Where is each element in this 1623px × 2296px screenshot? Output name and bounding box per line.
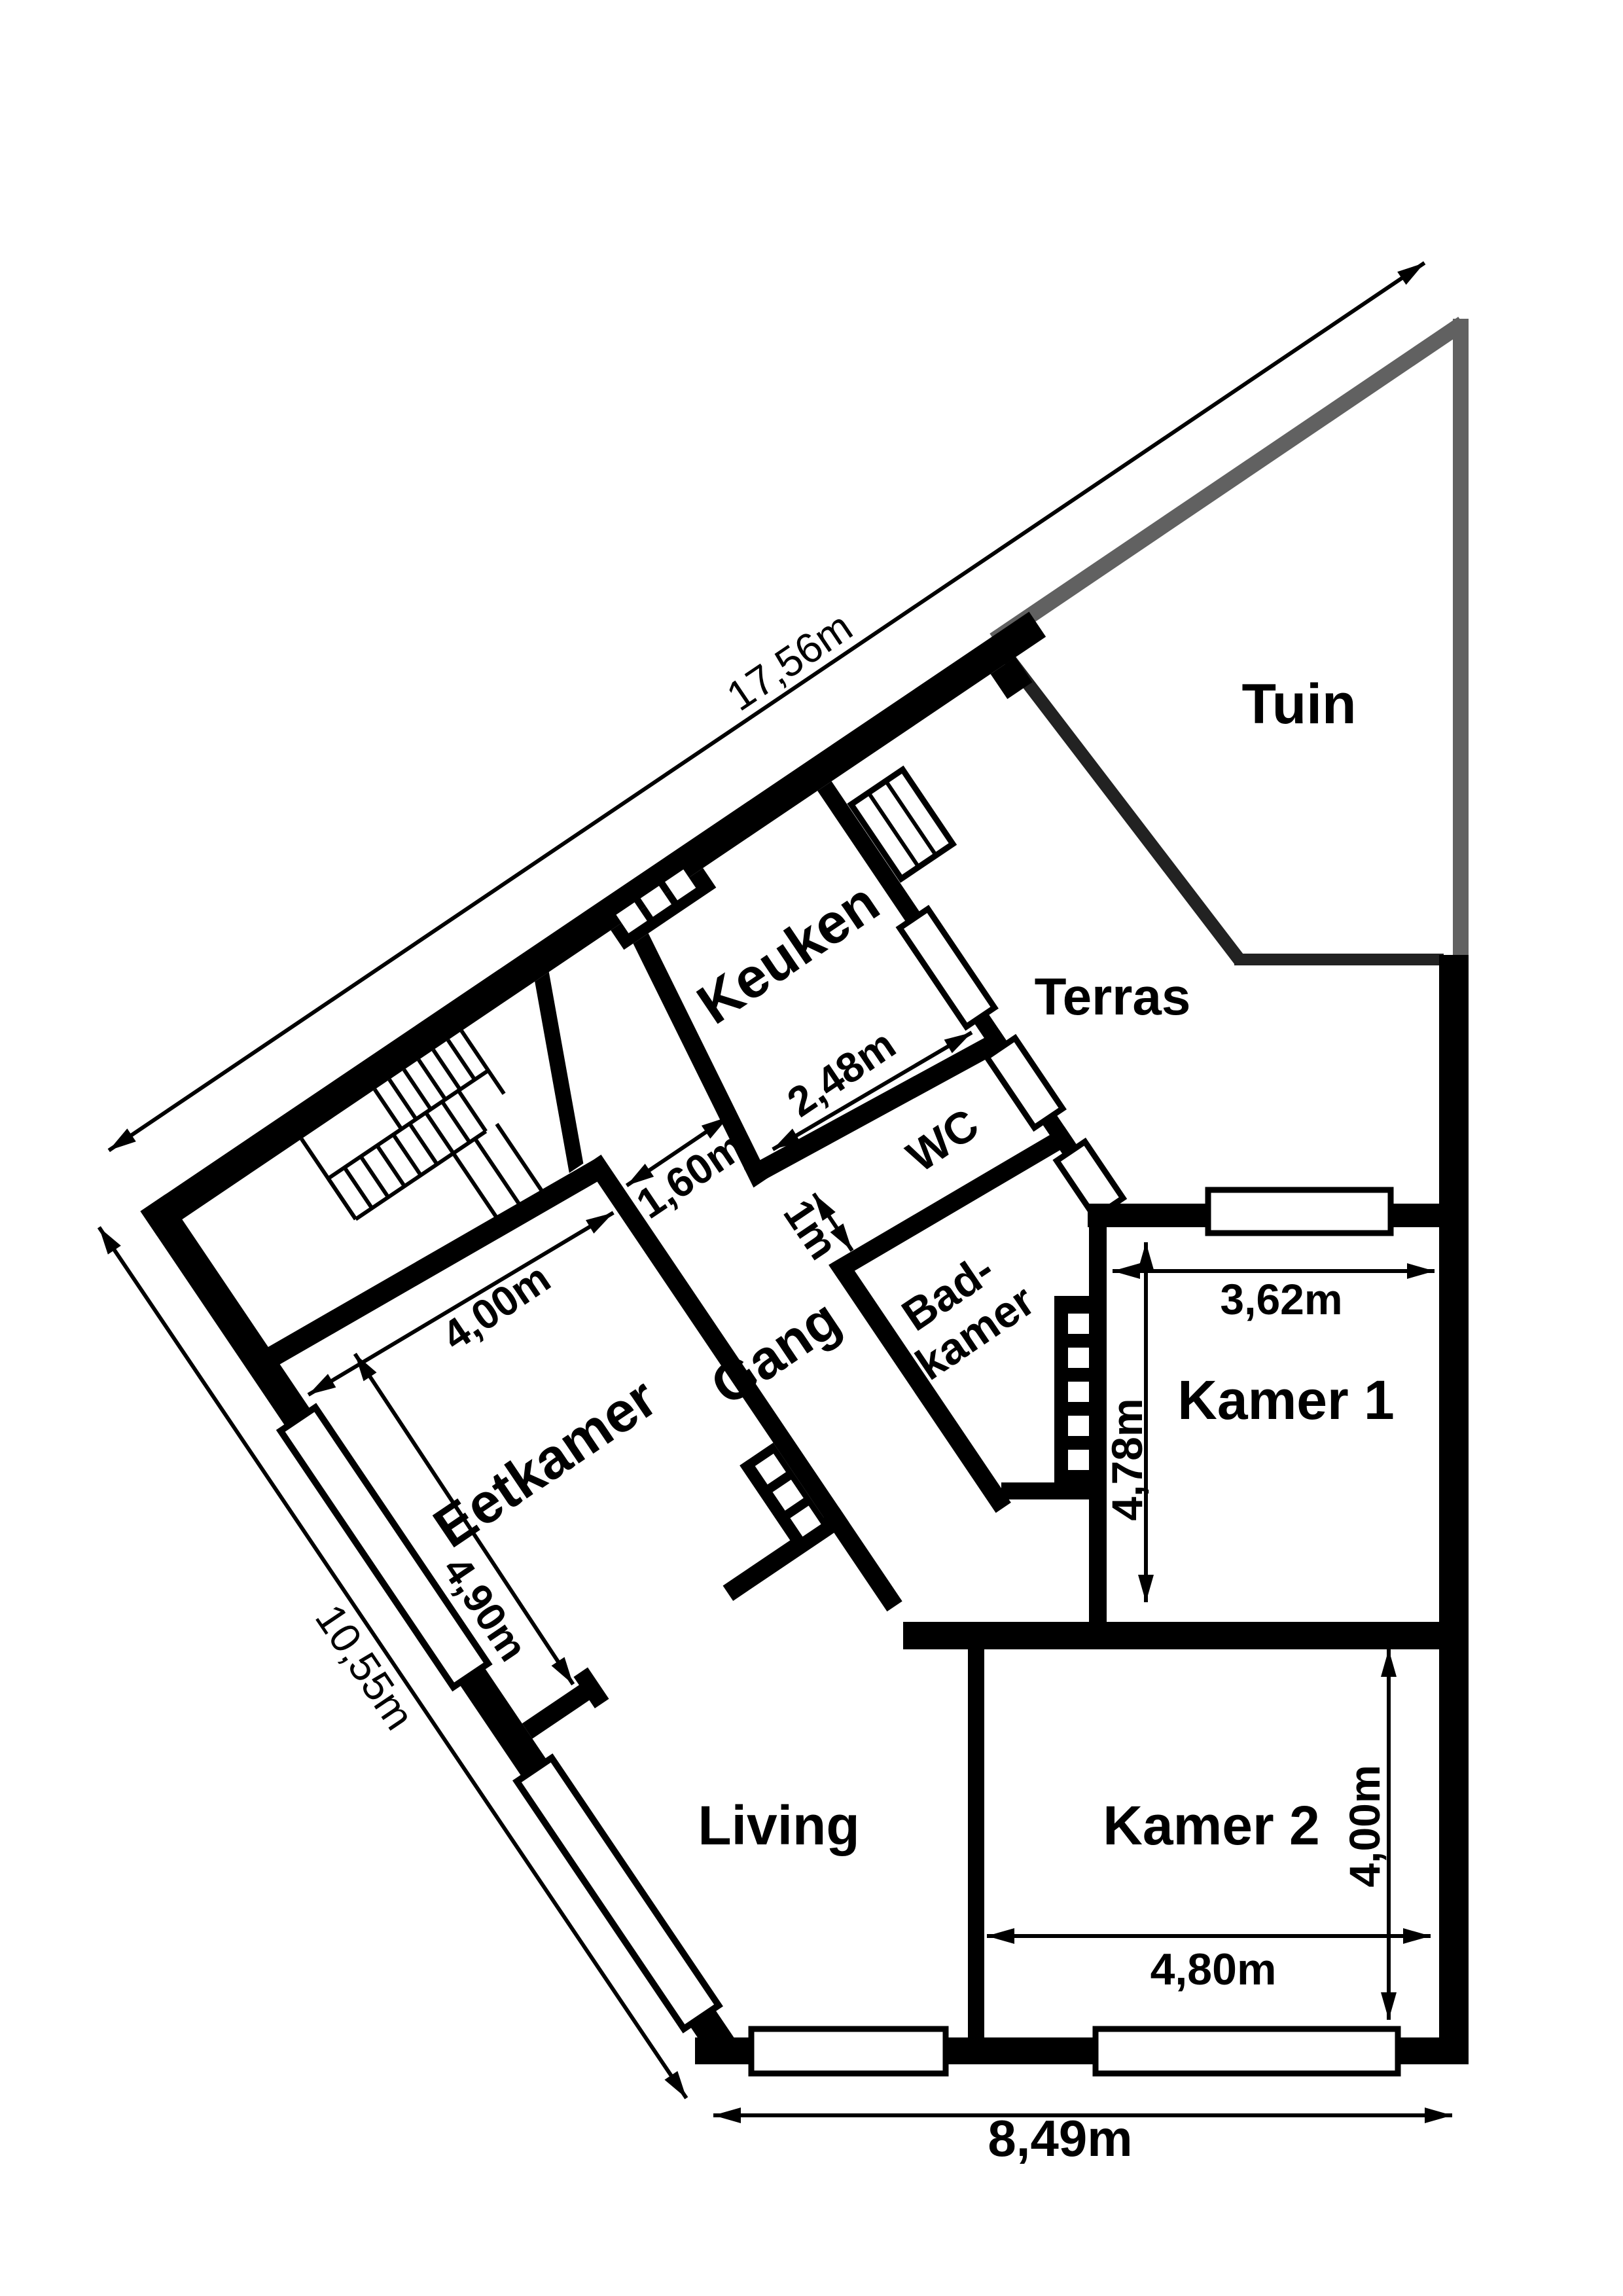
svg-text:4,80m: 4,80m — [1150, 1945, 1277, 1994]
svg-text:8,49m: 8,49m — [988, 2109, 1132, 2167]
svg-text:4,78m: 4,78m — [1103, 1398, 1151, 1520]
svg-text:Kamer 2: Kamer 2 — [1103, 1795, 1320, 1856]
svg-text:Terras: Terras — [1035, 967, 1191, 1026]
svg-text:Living: Living — [698, 1795, 859, 1856]
svg-text:Tuin: Tuin — [1241, 673, 1356, 736]
svg-text:3,62m: 3,62m — [1220, 1275, 1342, 1323]
svg-text:Kamer 1: Kamer 1 — [1177, 1369, 1395, 1431]
svg-text:4,00m: 4,00m — [1340, 1765, 1389, 1887]
